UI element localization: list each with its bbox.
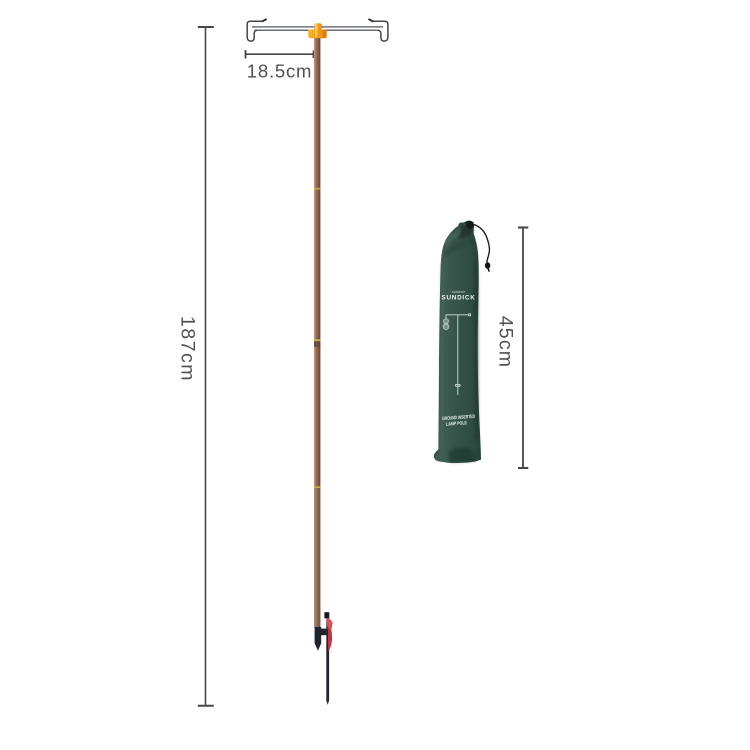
svg-text:187cm: 187cm [177,316,199,382]
svg-text:outdoor: outdoor [452,289,466,294]
svg-text:18.5cm: 18.5cm [247,61,312,82]
svg-text:45cm: 45cm [495,316,517,368]
svg-text:SUNDICK: SUNDICK [442,296,476,302]
